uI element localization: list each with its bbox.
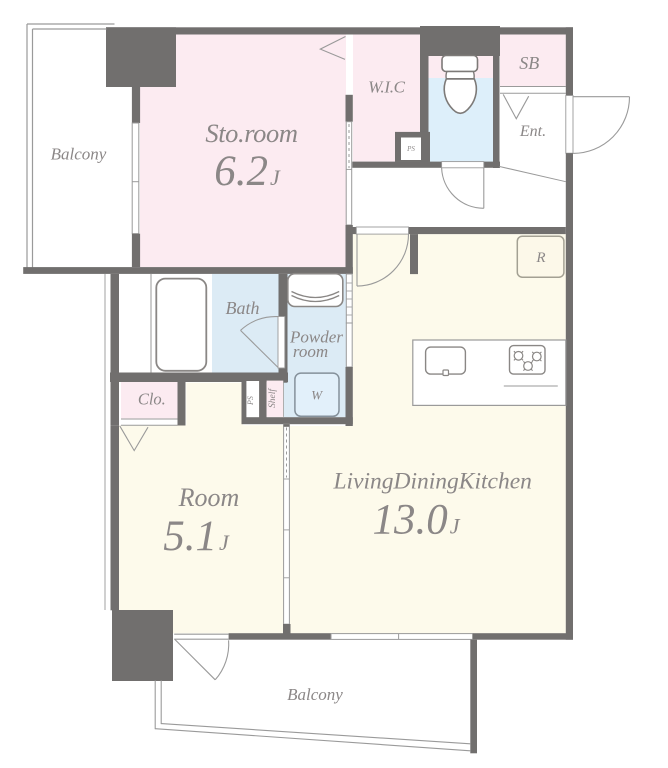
svg-text:13.0J: 13.0J xyxy=(372,497,460,544)
svg-text:Balcony: Balcony xyxy=(287,685,343,704)
svg-text:W: W xyxy=(311,388,323,403)
svg-text:Balcony: Balcony xyxy=(51,145,107,164)
svg-text:R: R xyxy=(535,250,545,266)
svg-text:Clo.: Clo. xyxy=(138,390,166,409)
svg-text:Shelf: Shelf xyxy=(267,388,278,408)
svg-text:W.I.C: W.I.C xyxy=(368,78,406,97)
svg-text:Bath: Bath xyxy=(226,298,260,318)
svg-text:PS: PS xyxy=(406,145,415,153)
svg-text:LivingDiningKitchen: LivingDiningKitchen xyxy=(332,469,531,495)
svg-text:Ent.: Ent. xyxy=(519,123,546,140)
svg-text:PS: PS xyxy=(246,396,255,406)
svg-text:room: room xyxy=(293,342,328,361)
svg-text:SB: SB xyxy=(519,53,539,73)
svg-text:Room: Room xyxy=(178,483,240,512)
svg-text:Sto.room: Sto.room xyxy=(205,118,298,148)
